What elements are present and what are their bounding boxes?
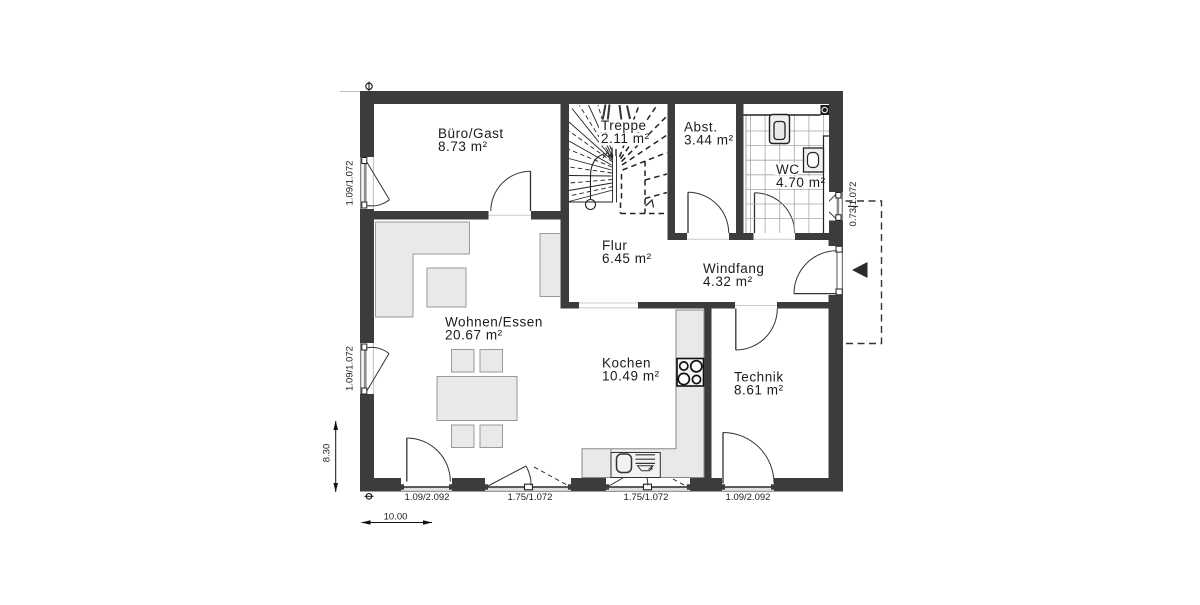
svg-text:0.73/1.072: 0.73/1.072 [848,182,859,227]
svg-text:8.61 m²: 8.61 m² [734,383,784,398]
svg-text:8.30: 8.30 [322,444,333,463]
svg-text:1.75/1.072: 1.75/1.072 [508,492,553,503]
svg-text:20.67 m²: 20.67 m² [445,328,503,343]
svg-text:6.45 m²: 6.45 m² [602,251,652,266]
svg-text:10.00: 10.00 [384,512,408,523]
svg-text:2.11 m²: 2.11 m² [601,131,650,146]
svg-text:1.09/1.072: 1.09/1.072 [345,346,356,391]
svg-text:4.32 m²: 4.32 m² [703,274,753,289]
svg-text:10.49 m²: 10.49 m² [602,369,660,384]
svg-text:1.75/1.072: 1.75/1.072 [624,492,669,503]
svg-text:3.44 m²: 3.44 m² [684,133,734,148]
svg-text:4.70 m²: 4.70 m² [776,175,826,190]
svg-text:1.09/1.072: 1.09/1.072 [345,161,356,206]
svg-text:1.09/2.092: 1.09/2.092 [726,492,771,503]
svg-text:8.73 m²: 8.73 m² [438,139,488,154]
svg-text:1.09/2.092: 1.09/2.092 [405,492,450,503]
